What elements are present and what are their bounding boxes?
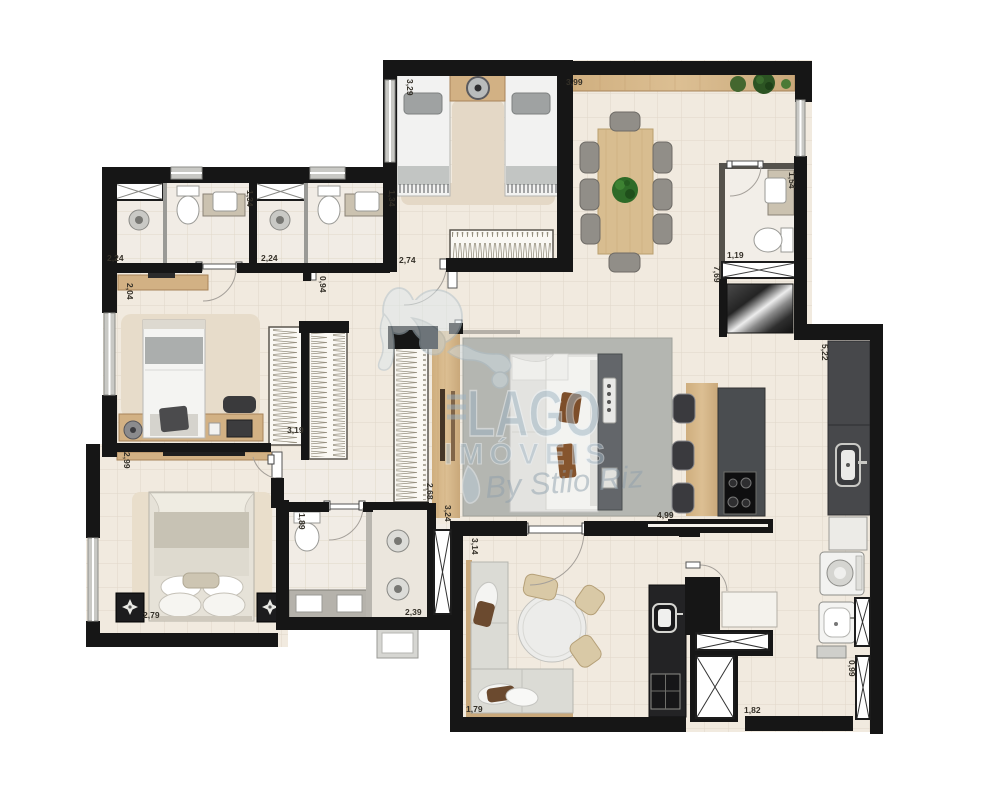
svg-text:2,24: 2,24 — [261, 253, 278, 263]
svg-text:3,99: 3,99 — [566, 77, 583, 87]
svg-text:1,34: 1,34 — [387, 190, 397, 207]
svg-text:1,79: 1,79 — [466, 704, 483, 714]
svg-text:0,99: 0,99 — [847, 660, 857, 677]
svg-text:2,04: 2,04 — [125, 283, 135, 300]
svg-text:0,94: 0,94 — [318, 276, 328, 293]
svg-text:7,69: 7,69 — [712, 266, 722, 283]
svg-text:1,54: 1,54 — [787, 172, 797, 189]
svg-text:1,89: 1,89 — [297, 513, 307, 530]
svg-text:3,19: 3,19 — [287, 425, 304, 435]
svg-text:2,39: 2,39 — [405, 607, 422, 617]
svg-text:3,14: 3,14 — [470, 538, 480, 555]
svg-text:3,29: 3,29 — [405, 79, 415, 96]
svg-text:1,34: 1,34 — [245, 190, 255, 207]
svg-text:3,24: 3,24 — [443, 505, 453, 522]
svg-text:2,79: 2,79 — [143, 610, 160, 620]
svg-text:2,99: 2,99 — [122, 452, 132, 469]
svg-text:2,68: 2,68 — [425, 483, 435, 500]
svg-text:2,74: 2,74 — [399, 255, 416, 265]
svg-text:5,22: 5,22 — [820, 344, 830, 361]
svg-text:1,82: 1,82 — [744, 705, 761, 715]
svg-text:1,19: 1,19 — [727, 250, 744, 260]
svg-text:2,24: 2,24 — [107, 253, 124, 263]
svg-text:4,99: 4,99 — [657, 510, 674, 520]
